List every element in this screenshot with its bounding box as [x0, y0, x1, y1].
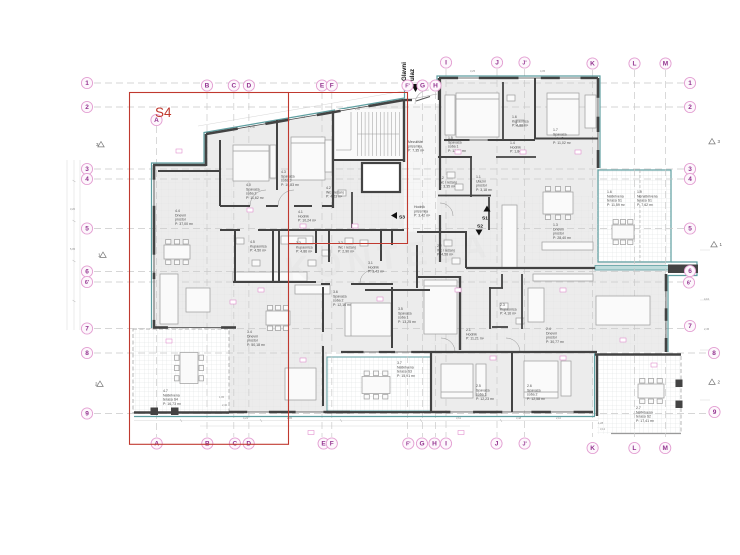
svg-text:P: 4,50 m²: P: 4,50 m²: [250, 249, 267, 253]
svg-text:P: 12,58 m²: P: 12,58 m²: [527, 397, 546, 401]
svg-text:I: I: [445, 60, 447, 67]
svg-text:P: 11,02 m²: P: 11,02 m²: [553, 141, 572, 145]
svg-text:P: 17,41 m²: P: 17,41 m²: [636, 419, 655, 423]
svg-text:P: 7,35 m²: P: 7,35 m²: [408, 149, 425, 153]
svg-text:3,15: 3,15: [300, 115, 306, 119]
svg-text:1: 1: [688, 80, 692, 87]
svg-text:6: 6: [688, 268, 692, 275]
svg-text:J: J: [495, 60, 499, 67]
svg-text:L: L: [632, 445, 636, 452]
svg-text:8: 8: [712, 350, 716, 357]
svg-text:C: C: [231, 83, 236, 90]
svg-text:5,05: 5,05: [70, 247, 76, 251]
svg-text:P: 11,21 m²: P: 11,21 m²: [466, 337, 485, 341]
svg-text:2,10: 2,10: [556, 416, 562, 420]
svg-text:F: F: [330, 83, 334, 90]
svg-text:E: E: [320, 83, 325, 90]
svg-text:S1: S1: [482, 216, 488, 222]
svg-text:F': F': [405, 84, 410, 90]
svg-text:6': 6': [85, 280, 89, 286]
svg-text:P: 4,88 m²: P: 4,88 m²: [512, 124, 529, 128]
svg-text:3,20: 3,20: [70, 207, 76, 211]
svg-text:3,48: 3,48: [516, 416, 522, 420]
svg-text:7: 7: [688, 323, 692, 330]
svg-text:ulaz: ulaz: [409, 69, 416, 81]
svg-text:G: G: [419, 441, 424, 448]
svg-text:G: G: [420, 83, 425, 90]
svg-text:4,22: 4,22: [243, 416, 249, 420]
svg-text:E: E: [321, 441, 326, 448]
svg-text:B: B: [205, 83, 210, 90]
svg-text:3,12: 3,12: [600, 427, 606, 431]
svg-text:M: M: [663, 61, 668, 68]
svg-text:1: 1: [85, 80, 89, 87]
svg-text:H: H: [432, 441, 437, 448]
svg-text:P: 12,23 m²: P: 12,23 m²: [476, 397, 495, 401]
svg-text:P: 4,16 m²: P: 4,16 m²: [500, 312, 517, 316]
svg-text:8: 8: [85, 350, 89, 357]
svg-text:P: 11,59 m²: P: 11,59 m²: [607, 203, 626, 207]
svg-text:1,95: 1,95: [219, 395, 225, 399]
svg-text:H: H: [433, 83, 438, 90]
svg-text:4: 4: [688, 176, 692, 183]
svg-text:P: 15,91 m²: P: 15,91 m²: [397, 374, 416, 378]
svg-text:4,10: 4,10: [704, 297, 710, 301]
svg-text:2: 2: [85, 104, 89, 111]
svg-text:2,40: 2,40: [250, 125, 256, 129]
svg-text:6': 6': [687, 281, 691, 287]
svg-text:P: 28,40 m²: P: 28,40 m²: [553, 236, 572, 240]
svg-text:9: 9: [713, 409, 717, 416]
svg-text:2,45: 2,45: [704, 327, 710, 331]
svg-text:P: 12,16 m²: P: 12,16 m²: [333, 303, 352, 307]
svg-text:S3: S3: [399, 215, 405, 221]
svg-text:5: 5: [688, 226, 692, 233]
svg-text:P: 13,25 m²: P: 13,25 m²: [398, 320, 417, 324]
svg-text:F: F: [330, 441, 334, 448]
svg-text:P: 10,24 m²: P: 10,24 m²: [298, 219, 317, 223]
svg-text:P: 50,18 m²: P: 50,18 m²: [247, 343, 266, 347]
svg-text:3: 3: [85, 166, 89, 173]
svg-text:3: 3: [688, 166, 692, 173]
svg-text:F': F': [406, 442, 411, 448]
svg-text:P: 10,83 m²: P: 10,83 m²: [281, 183, 300, 187]
svg-text:L: L: [633, 61, 637, 68]
svg-text:J: J: [495, 441, 499, 448]
svg-text:7: 7: [85, 326, 89, 333]
svg-text:K: K: [590, 61, 595, 68]
svg-text:P: 3,18 m²: P: 3,18 m²: [476, 188, 493, 192]
svg-text:P: 37,00 m²: P: 37,00 m²: [175, 222, 194, 226]
svg-text:K: K: [590, 445, 595, 452]
svg-text:P: 30,77 m²: P: 30,77 m²: [546, 340, 565, 344]
svg-text:4: 4: [85, 176, 89, 183]
svg-text:2,40: 2,40: [222, 403, 228, 407]
svg-text:M: M: [662, 445, 667, 452]
svg-text:P: 16,73 m²: P: 16,73 m²: [163, 402, 182, 406]
svg-text:P: 4,23 m²: P: 4,23 m²: [326, 195, 343, 199]
svg-text:S4: S4: [155, 105, 172, 120]
svg-text:D: D: [247, 83, 252, 90]
svg-text:P: 11,62 m²: P: 11,62 m²: [246, 196, 265, 200]
svg-text:J': J': [522, 442, 526, 448]
svg-text:6: 6: [85, 269, 89, 276]
svg-text:J': J': [522, 61, 526, 67]
svg-text:P: 3,42 m²: P: 3,42 m²: [414, 214, 431, 218]
svg-text:5: 5: [85, 226, 89, 233]
svg-text:1,28: 1,28: [598, 421, 604, 425]
svg-text:9: 9: [85, 411, 89, 418]
svg-text:P: 7,62 m²: P: 7,62 m²: [637, 203, 654, 207]
svg-text:2: 2: [688, 104, 692, 111]
svg-text:I: I: [445, 441, 447, 448]
svg-text:3,25: 3,25: [470, 69, 476, 73]
svg-text:Glavni: Glavni: [401, 62, 408, 81]
svg-text:P: 3,35 m²: P: 3,35 m²: [439, 185, 456, 189]
svg-text:2,80: 2,80: [355, 107, 361, 111]
svg-text:3,61: 3,61: [456, 416, 462, 420]
svg-text:2,95: 2,95: [287, 416, 293, 420]
svg-text:4,05: 4,05: [540, 69, 546, 73]
